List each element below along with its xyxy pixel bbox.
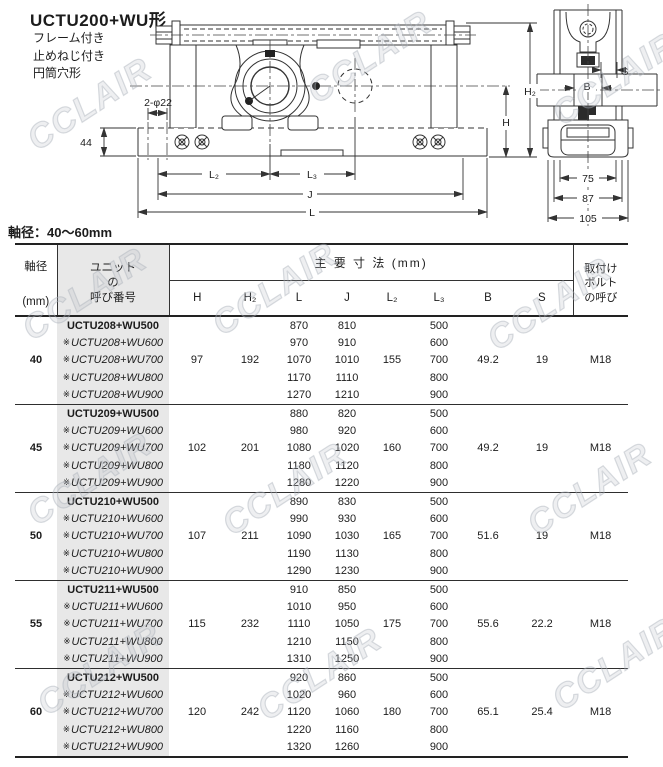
reference-mark: ※: [63, 706, 70, 716]
reference-mark: ※: [63, 354, 70, 364]
unit-name-text: UCTU209+WU500: [67, 408, 159, 420]
unit-name: ※UCTU209+WU800: [57, 457, 169, 474]
dim-label-l3: L₃: [307, 169, 317, 181]
value-J: 1260: [323, 738, 371, 756]
unit-name: ※UCTU208+WU700: [57, 352, 169, 369]
value-L: 910: [275, 580, 323, 598]
value-J: 1150: [323, 633, 371, 650]
table-row: 60UCTU212+WU50012024292086018050065.125.…: [15, 668, 628, 686]
value-L3: 500: [413, 580, 465, 598]
value-J: 1220: [323, 475, 371, 493]
front-view: [138, 21, 487, 156]
value-L3: 700: [413, 528, 465, 545]
reference-mark: ※: [63, 724, 70, 734]
unit-name: UCTU209+WU500: [57, 404, 169, 422]
value-S: 25.4: [511, 668, 573, 756]
header-col-B: B: [465, 281, 511, 317]
unit-name: UCTU208+WU500: [57, 316, 169, 334]
unit-name: UCTU210+WU500: [57, 492, 169, 510]
header-col-H2: H₂: [225, 281, 275, 317]
value-L: 1170: [275, 369, 323, 386]
value-J: 1250: [323, 650, 371, 668]
reference-mark: ※: [63, 389, 70, 399]
dim-label-b: B: [583, 81, 590, 93]
reference-mark: ※: [63, 372, 70, 382]
unit-name: ※UCTU210+WU600: [57, 510, 169, 527]
size-group: 40UCTU208+WU5009719287081015550049.219M1…: [15, 316, 628, 404]
value-J: 1020: [323, 440, 371, 457]
value-bolt: M18: [573, 668, 628, 756]
unit-name-text: UCTU210+WU700: [71, 530, 163, 542]
unit-name: ※UCTU212+WU700: [57, 704, 169, 721]
unit-name: ※UCTU210+WU800: [57, 545, 169, 562]
value-L: 970: [275, 334, 323, 351]
header-shaft-dia: 軸径 (mm): [15, 244, 57, 316]
value-L3: 700: [413, 440, 465, 457]
unit-name: ※UCTU208+WU800: [57, 369, 169, 386]
value-J: 1010: [323, 352, 371, 369]
unit-name-text: UCTU209+WU800: [71, 460, 163, 472]
dim-label-87: 87: [582, 193, 594, 205]
unit-name: ※UCTU209+WU700: [57, 440, 169, 457]
value-L: 1270: [275, 387, 323, 405]
size-group: 50UCTU210+WU50010721189083016550051.619M…: [15, 492, 628, 580]
dim-label-l2: L₂: [209, 169, 219, 181]
value-L: 920: [275, 668, 323, 686]
value-J: 810: [323, 316, 371, 334]
value-H2: 211: [225, 492, 275, 580]
unit-name-text: UCTU210+WU600: [71, 513, 163, 525]
value-H2: 242: [225, 668, 275, 756]
unit-name: ※UCTU212+WU900: [57, 738, 169, 756]
reference-mark: ※: [63, 689, 70, 699]
header-col-J: J: [323, 281, 371, 317]
value-J: 1230: [323, 562, 371, 580]
value-J: 1060: [323, 704, 371, 721]
value-H: 115: [169, 580, 225, 668]
value-L: 890: [275, 492, 323, 510]
value-L: 1090: [275, 528, 323, 545]
reference-mark: ※: [63, 460, 70, 470]
value-L3: 900: [413, 738, 465, 756]
unit-name: ※UCTU209+WU600: [57, 422, 169, 439]
unit-name-text: UCTU208+WU900: [71, 389, 163, 401]
unit-name-text: UCTU209+WU900: [71, 477, 163, 489]
value-L3: 800: [413, 633, 465, 650]
value-L: 880: [275, 404, 323, 422]
dim-label-base-height: 44: [80, 137, 92, 149]
unit-name-text: UCTU211+WU900: [71, 653, 162, 665]
value-J: 1210: [323, 387, 371, 405]
table-row: 55UCTU211+WU50011523291085017550055.622.…: [15, 580, 628, 598]
value-bolt: M18: [573, 492, 628, 580]
value-L3: 700: [413, 704, 465, 721]
shaft-dia-value: 40: [15, 316, 57, 404]
value-J: 860: [323, 668, 371, 686]
header-shaft-dia-label: 軸径: [15, 260, 57, 275]
value-B: 49.2: [465, 404, 511, 492]
reference-mark: ※: [63, 741, 70, 751]
shaft-diameter-range: 軸径：40～60mm: [8, 222, 112, 241]
header-bolt-line: ボルト: [574, 276, 629, 291]
reference-mark: ※: [63, 530, 70, 540]
dim-label-s: S: [621, 66, 628, 78]
unit-name-text: UCTU210+WU900: [71, 565, 163, 577]
value-H: 97: [169, 316, 225, 404]
value-L3: 600: [413, 422, 465, 439]
side-view: [537, 10, 657, 157]
unit-name-text: UCTU212+WU700: [71, 706, 163, 718]
value-J: 930: [323, 510, 371, 527]
header-col-L: L: [275, 281, 323, 317]
value-J: 1050: [323, 616, 371, 633]
unit-name-text: UCTU212+WU900: [71, 741, 163, 753]
unit-name: ※UCTU208+WU900: [57, 387, 169, 405]
unit-name: ※UCTU211+WU700: [57, 616, 169, 633]
reference-mark: ※: [63, 477, 70, 487]
shaft-dia-value: 55: [15, 580, 57, 668]
table-row: 40UCTU208+WU5009719287081015550049.219M1…: [15, 316, 628, 334]
value-L3: 500: [413, 404, 465, 422]
value-L3: 900: [413, 650, 465, 668]
shaft-dia-value: 45: [15, 404, 57, 492]
table-row: 50UCTU210+WU50010721189083016550051.619M…: [15, 492, 628, 510]
technical-drawing: 2-φ22 44 L₂ L₃ J L H H₂ S B 75 87 105: [0, 0, 663, 238]
value-B: 55.6: [465, 580, 511, 668]
unit-name: ※UCTU210+WU700: [57, 528, 169, 545]
value-L3: 900: [413, 387, 465, 405]
value-J: 920: [323, 422, 371, 439]
unit-name-text: UCTU212+WU800: [71, 724, 163, 736]
value-L3: 600: [413, 598, 465, 615]
value-J: 1030: [323, 528, 371, 545]
value-H2: 232: [225, 580, 275, 668]
reference-mark: ※: [63, 548, 70, 558]
unit-name-text: UCTU208+WU800: [71, 372, 163, 384]
header-col-L3: L₃: [413, 281, 465, 317]
dim-label-hole: 2-φ22: [144, 97, 172, 109]
value-L3: 500: [413, 668, 465, 686]
header-unit-line: ユニット: [58, 261, 169, 276]
value-L: 1190: [275, 545, 323, 562]
value-L2: 175: [371, 580, 413, 668]
value-H: 102: [169, 404, 225, 492]
value-L3: 800: [413, 457, 465, 474]
reference-mark: ※: [63, 653, 70, 663]
value-B: 65.1: [465, 668, 511, 756]
reference-mark: ※: [63, 442, 70, 452]
value-B: 49.2: [465, 316, 511, 404]
value-L: 870: [275, 316, 323, 334]
dim-label-75: 75: [582, 173, 594, 185]
unit-name-text: UCTU211+WU800: [71, 636, 162, 648]
dimension-table: 軸径 (mm) ユニット の 呼び番号 主 要 寸 法 (mm) 取付け ボルト…: [15, 243, 628, 758]
header-bolt-line: 取付け: [574, 262, 629, 277]
value-J: 910: [323, 334, 371, 351]
value-L: 1020: [275, 686, 323, 703]
value-L: 1310: [275, 650, 323, 668]
value-L2: 160: [371, 404, 413, 492]
dim-label-h2: H₂: [524, 86, 536, 98]
value-L3: 800: [413, 369, 465, 386]
value-S: 22.2: [511, 580, 573, 668]
catalog-page: CCLAIR CCLAIR CCLAIR CCLAIR CCLAIR CCLAI…: [0, 0, 663, 767]
reference-mark: ※: [63, 337, 70, 347]
reference-mark: ※: [63, 618, 70, 628]
value-bolt: M18: [573, 316, 628, 404]
header-col-S: S: [511, 281, 573, 317]
reference-mark: ※: [63, 636, 70, 646]
value-L3: 800: [413, 545, 465, 562]
value-H: 120: [169, 668, 225, 756]
value-L: 1290: [275, 562, 323, 580]
header-unit-number: ユニット の 呼び番号: [57, 244, 169, 316]
table-header: 軸径 (mm) ユニット の 呼び番号 主 要 寸 法 (mm) 取付け ボルト…: [15, 244, 628, 316]
value-L: 1070: [275, 352, 323, 369]
value-J: 950: [323, 598, 371, 615]
value-L: 1180: [275, 457, 323, 474]
reference-mark: ※: [63, 565, 70, 575]
unit-name-text: UCTU211+WU600: [71, 601, 162, 613]
value-J: 1130: [323, 545, 371, 562]
unit-name-text: UCTU210+WU500: [67, 496, 159, 508]
unit-name: ※UCTU212+WU800: [57, 721, 169, 738]
value-L: 1080: [275, 440, 323, 457]
value-L: 1320: [275, 738, 323, 756]
dim-label-h: H: [502, 117, 510, 129]
header-mounting-bolt: 取付け ボルト の呼び: [573, 244, 628, 316]
header-unit-line: の: [58, 276, 169, 291]
size-group: 55UCTU211+WU50011523291085017550055.622.…: [15, 580, 628, 668]
value-L2: 165: [371, 492, 413, 580]
unit-name-text: UCTU208+WU500: [67, 320, 159, 332]
value-H: 107: [169, 492, 225, 580]
shaft-dia-value: 50: [15, 492, 57, 580]
value-L3: 900: [413, 475, 465, 493]
reference-mark: ※: [63, 601, 70, 611]
value-J: 1120: [323, 457, 371, 474]
dim-label-105: 105: [579, 213, 597, 225]
unit-name: ※UCTU212+WU600: [57, 686, 169, 703]
unit-name: ※UCTU209+WU900: [57, 475, 169, 493]
size-group: 60UCTU212+WU50012024292086018050065.125.…: [15, 668, 628, 756]
unit-name: ※UCTU211+WU600: [57, 598, 169, 615]
value-L3: 500: [413, 316, 465, 334]
value-L3: 600: [413, 686, 465, 703]
value-S: 19: [511, 404, 573, 492]
unit-name: ※UCTU211+WU900: [57, 650, 169, 668]
value-L2: 180: [371, 668, 413, 756]
value-L3: 900: [413, 562, 465, 580]
value-B: 51.6: [465, 492, 511, 580]
value-L: 1210: [275, 633, 323, 650]
value-L3: 700: [413, 616, 465, 633]
header-col-L2: L₂: [371, 281, 413, 317]
unit-name-text: UCTU208+WU700: [71, 354, 163, 366]
unit-name: ※UCTU211+WU800: [57, 633, 169, 650]
header-unit-line: 呼び番号: [58, 291, 169, 306]
value-L3: 500: [413, 492, 465, 510]
unit-name: ※UCTU210+WU900: [57, 562, 169, 580]
reference-mark: ※: [63, 513, 70, 523]
dim-label-j: J: [307, 189, 312, 201]
value-H2: 201: [225, 404, 275, 492]
unit-name-text: UCTU211+WU500: [67, 584, 158, 596]
unit-name-text: UCTU212+WU600: [71, 689, 163, 701]
value-L: 1220: [275, 721, 323, 738]
unit-name: UCTU212+WU500: [57, 668, 169, 686]
value-J: 1160: [323, 721, 371, 738]
unit-name-text: UCTU209+WU600: [71, 425, 163, 437]
value-L: 1010: [275, 598, 323, 615]
value-L3: 800: [413, 721, 465, 738]
value-L: 1110: [275, 616, 323, 633]
unit-name-text: UCTU212+WU500: [67, 672, 159, 684]
dim-label-l: L: [309, 207, 315, 219]
value-L3: 600: [413, 334, 465, 351]
value-J: 830: [323, 492, 371, 510]
header-main-dimensions: 主 要 寸 法 (mm): [169, 244, 573, 281]
value-L: 1120: [275, 704, 323, 721]
table-row: 45UCTU209+WU50010220188082016050049.219M…: [15, 404, 628, 422]
value-L: 1280: [275, 475, 323, 493]
value-S: 19: [511, 492, 573, 580]
reference-mark: ※: [63, 425, 70, 435]
unit-name-text: UCTU211+WU700: [71, 618, 162, 630]
header-shaft-dia-unit: (mm): [15, 295, 57, 310]
value-J: 1110: [323, 369, 371, 386]
shaft-dia-value: 60: [15, 668, 57, 756]
value-J: 850: [323, 580, 371, 598]
unit-name-text: UCTU208+WU600: [71, 337, 163, 349]
value-L2: 155: [371, 316, 413, 404]
value-J: 820: [323, 404, 371, 422]
unit-name-text: UCTU209+WU700: [71, 442, 163, 454]
value-bolt: M18: [573, 404, 628, 492]
unit-name-text: UCTU210+WU800: [71, 548, 163, 560]
value-L: 990: [275, 510, 323, 527]
value-S: 19: [511, 316, 573, 404]
value-H2: 192: [225, 316, 275, 404]
value-L3: 600: [413, 510, 465, 527]
header-col-H: H: [169, 281, 225, 317]
value-L3: 700: [413, 352, 465, 369]
value-bolt: M18: [573, 580, 628, 668]
size-group: 45UCTU209+WU50010220188082016050049.219M…: [15, 404, 628, 492]
value-L: 980: [275, 422, 323, 439]
header-bolt-line: の呼び: [574, 291, 629, 306]
unit-name: ※UCTU208+WU600: [57, 334, 169, 351]
unit-name: UCTU211+WU500: [57, 580, 169, 598]
value-J: 960: [323, 686, 371, 703]
